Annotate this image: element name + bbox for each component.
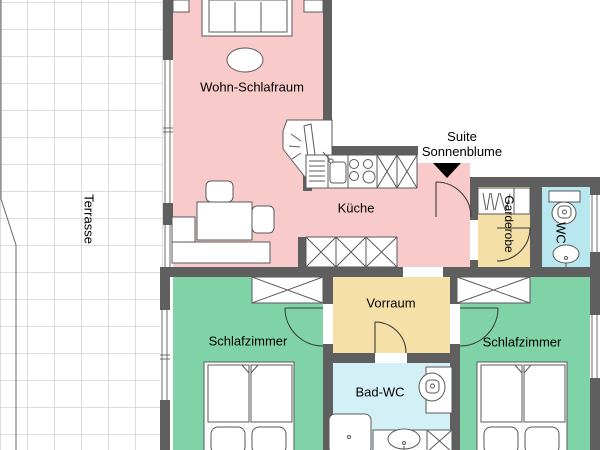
kitchen-cabinet-row	[306, 237, 397, 267]
window-wc	[590, 195, 600, 252]
pillow	[525, 427, 559, 450]
kitchen-counter	[306, 152, 417, 188]
pillow	[211, 427, 245, 450]
label-schlafzimmer-left: Schlafzimmer	[209, 335, 288, 350]
label-suite-name: Suite Sonnenblume	[422, 130, 502, 160]
label-vorraum: Vorraum	[366, 297, 415, 312]
chair	[252, 206, 274, 233]
label-garderobe: Garderobe	[501, 195, 515, 252]
label-bad-wc: Bad-WC	[355, 386, 404, 401]
double-bed-left	[204, 362, 294, 450]
pillow	[252, 427, 286, 450]
pillow	[484, 427, 518, 450]
label-schlafzimmer-right: Schlafzimmer	[483, 336, 562, 351]
label-wohn-schlafraum: Wohn-Schlafraum	[200, 81, 304, 96]
suite-name-line1: Suite	[422, 130, 502, 145]
floor-plan: Terrasse Wohn-Schlafraum Küche Garderobe…	[0, 0, 600, 450]
bath-cabinet-x	[427, 430, 452, 450]
desk	[197, 202, 252, 240]
chair	[206, 181, 233, 202]
window-terrace-living	[163, 60, 173, 203]
label-kueche: Küche	[338, 202, 375, 217]
window-terrace-bedroom	[160, 310, 170, 400]
shower-tray	[329, 414, 371, 450]
wall-niche-left	[173, 0, 189, 12]
wardrobe-right	[457, 277, 530, 303]
window-bedroom-right	[590, 315, 600, 378]
wall-niche-right	[304, 0, 323, 12]
room-vorraum-floor	[333, 277, 450, 353]
sofa	[202, 0, 292, 36]
wardrobe-left	[252, 277, 323, 303]
sink-icon	[330, 162, 346, 183]
label-wc: WC	[553, 222, 568, 244]
label-terrasse: Terrasse	[81, 194, 96, 244]
bath-sink	[373, 429, 427, 450]
oval-table	[227, 48, 263, 72]
suite-name-line2: Sonnenblume	[422, 145, 502, 160]
double-bed-right	[477, 362, 567, 450]
